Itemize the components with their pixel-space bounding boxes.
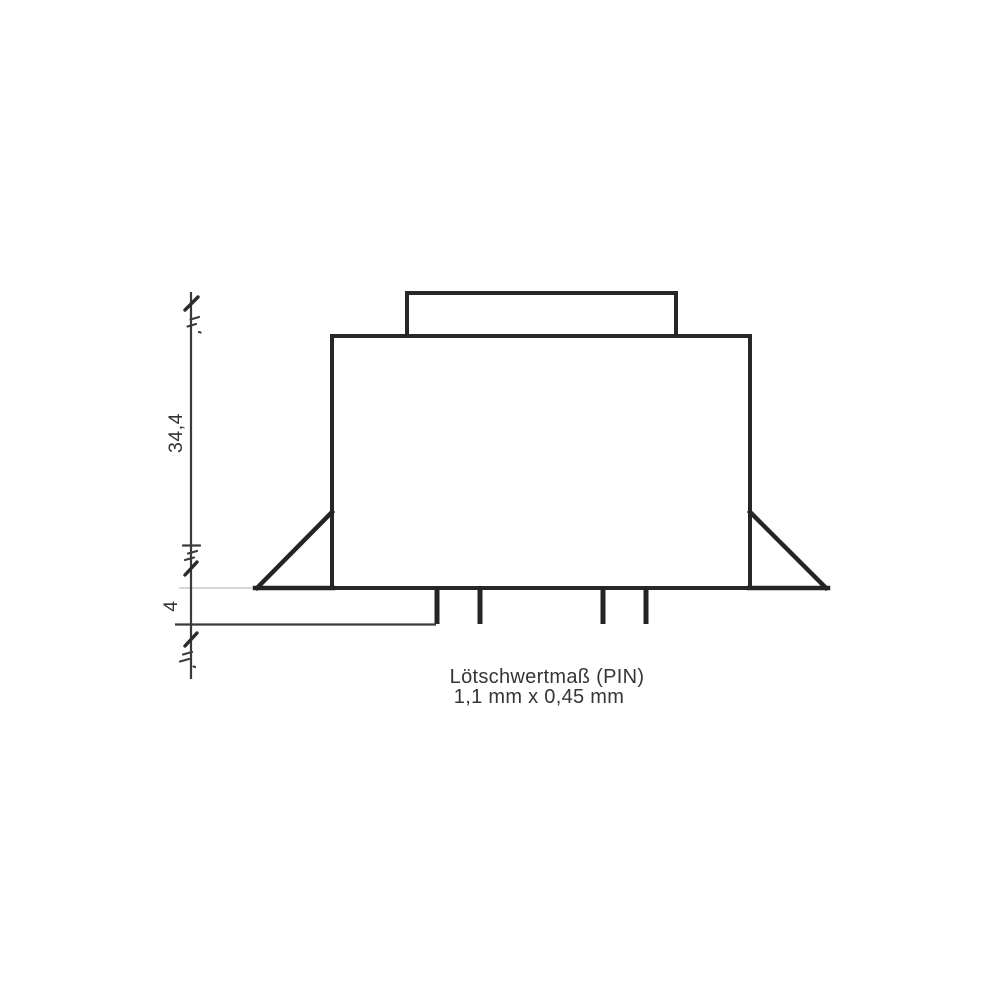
height-dimension-label: 34,4 [165, 413, 187, 453]
transformer-dimension-drawing: 34,4 4 Lötschwertmaß (PIN) 1,1 mm x 0,45… [0, 0, 1000, 1000]
dimension-tick-dash [188, 324, 197, 327]
pin-length-dimension-label: 4 [160, 600, 182, 611]
dimension-tick-dash [194, 667, 196, 668]
left-flange-diagonal [257, 512, 332, 588]
caption-line-1: Lötschwertmaß (PIN) [450, 666, 645, 688]
dimension-tick-dash [185, 558, 194, 561]
technical-drawing-page: 34,4 4 Lötschwertmaß (PIN) 1,1 mm x 0,45… [0, 0, 1000, 1000]
transformer-cover [407, 293, 676, 336]
dimension-tick-dash [199, 332, 201, 333]
dimension-tick-dash [180, 659, 189, 662]
right-flange-diagonal [750, 512, 826, 588]
dimension-tick-dash [188, 551, 197, 554]
caption-line-2: 1,1 mm x 0,45 mm [454, 686, 624, 708]
transformer-body [332, 336, 750, 588]
